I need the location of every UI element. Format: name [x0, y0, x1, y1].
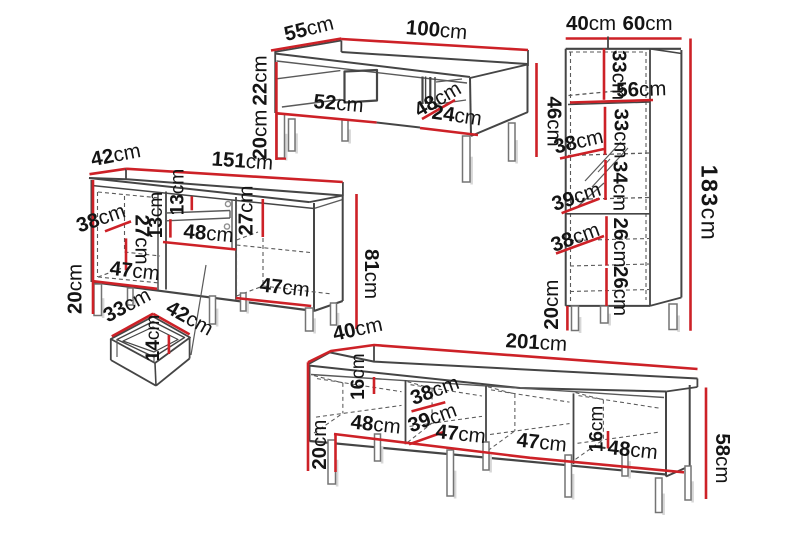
svg-text:20cm: 20cm: [540, 280, 563, 330]
svg-text:20cm: 20cm: [63, 264, 86, 314]
svg-text:14cm: 14cm: [143, 315, 164, 361]
svg-text:40cm: 40cm: [566, 12, 616, 35]
svg-text:151cm: 151cm: [211, 147, 274, 174]
svg-text:56cm: 56cm: [616, 77, 667, 102]
svg-text:27cm: 27cm: [235, 186, 258, 236]
svg-text:13cm: 13cm: [146, 192, 167, 238]
svg-text:60cm: 60cm: [622, 12, 672, 35]
svg-text:26cm: 26cm: [609, 266, 632, 316]
svg-text:16cm: 16cm: [587, 406, 608, 452]
svg-text:16cm: 16cm: [348, 353, 369, 399]
svg-text:201cm: 201cm: [505, 329, 568, 356]
svg-text:81cm: 81cm: [360, 249, 383, 299]
svg-text:20cm: 20cm: [308, 420, 331, 470]
svg-text:26cm: 26cm: [609, 217, 632, 267]
svg-text:183cm: 183cm: [697, 165, 723, 242]
svg-text:34cm: 34cm: [609, 161, 632, 211]
svg-text:58cm: 58cm: [711, 433, 734, 483]
svg-text:13cm: 13cm: [168, 169, 189, 215]
svg-text:48cm: 48cm: [183, 220, 235, 247]
svg-text:33cm: 33cm: [610, 108, 633, 158]
svg-text:22cm: 22cm: [249, 55, 272, 105]
svg-text:52cm: 52cm: [313, 90, 365, 117]
